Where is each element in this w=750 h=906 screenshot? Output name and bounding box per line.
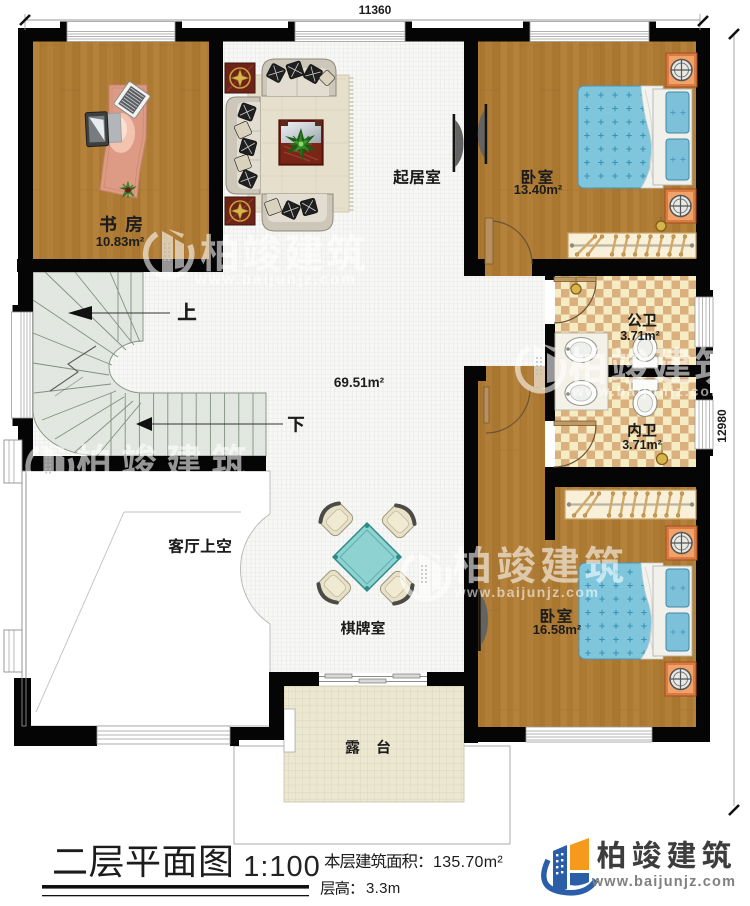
svg-text:13.40m²: 13.40m² — [514, 182, 563, 197]
svg-text:www.baijunjz.com: www.baijunjz.com — [572, 383, 726, 399]
svg-text:www.baijunjz.com: www.baijunjz.com — [194, 271, 356, 288]
svg-text:12980: 12980 — [715, 409, 729, 443]
svg-text:1:100: 1:100 — [243, 851, 321, 883]
svg-text:3.71m²: 3.71m² — [620, 329, 660, 343]
svg-text:3.3m: 3.3m — [366, 880, 401, 897]
svg-text:10.83m²: 10.83m² — [96, 234, 145, 249]
svg-text:3.71m²: 3.71m² — [622, 438, 662, 452]
svg-text:69.51m²: 69.51m² — [334, 375, 385, 390]
svg-text:www.baijunjz.com: www.baijunjz.com — [591, 874, 736, 890]
svg-text:16.58m²: 16.58m² — [533, 622, 582, 637]
svg-text:www.baijunjz.com: www.baijunjz.com — [99, 478, 241, 493]
svg-text:135.70m²: 135.70m² — [433, 854, 503, 871]
svg-text:www.baijunjz.com: www.baijunjz.com — [454, 584, 600, 600]
svg-text:11360: 11360 — [359, 3, 392, 17]
